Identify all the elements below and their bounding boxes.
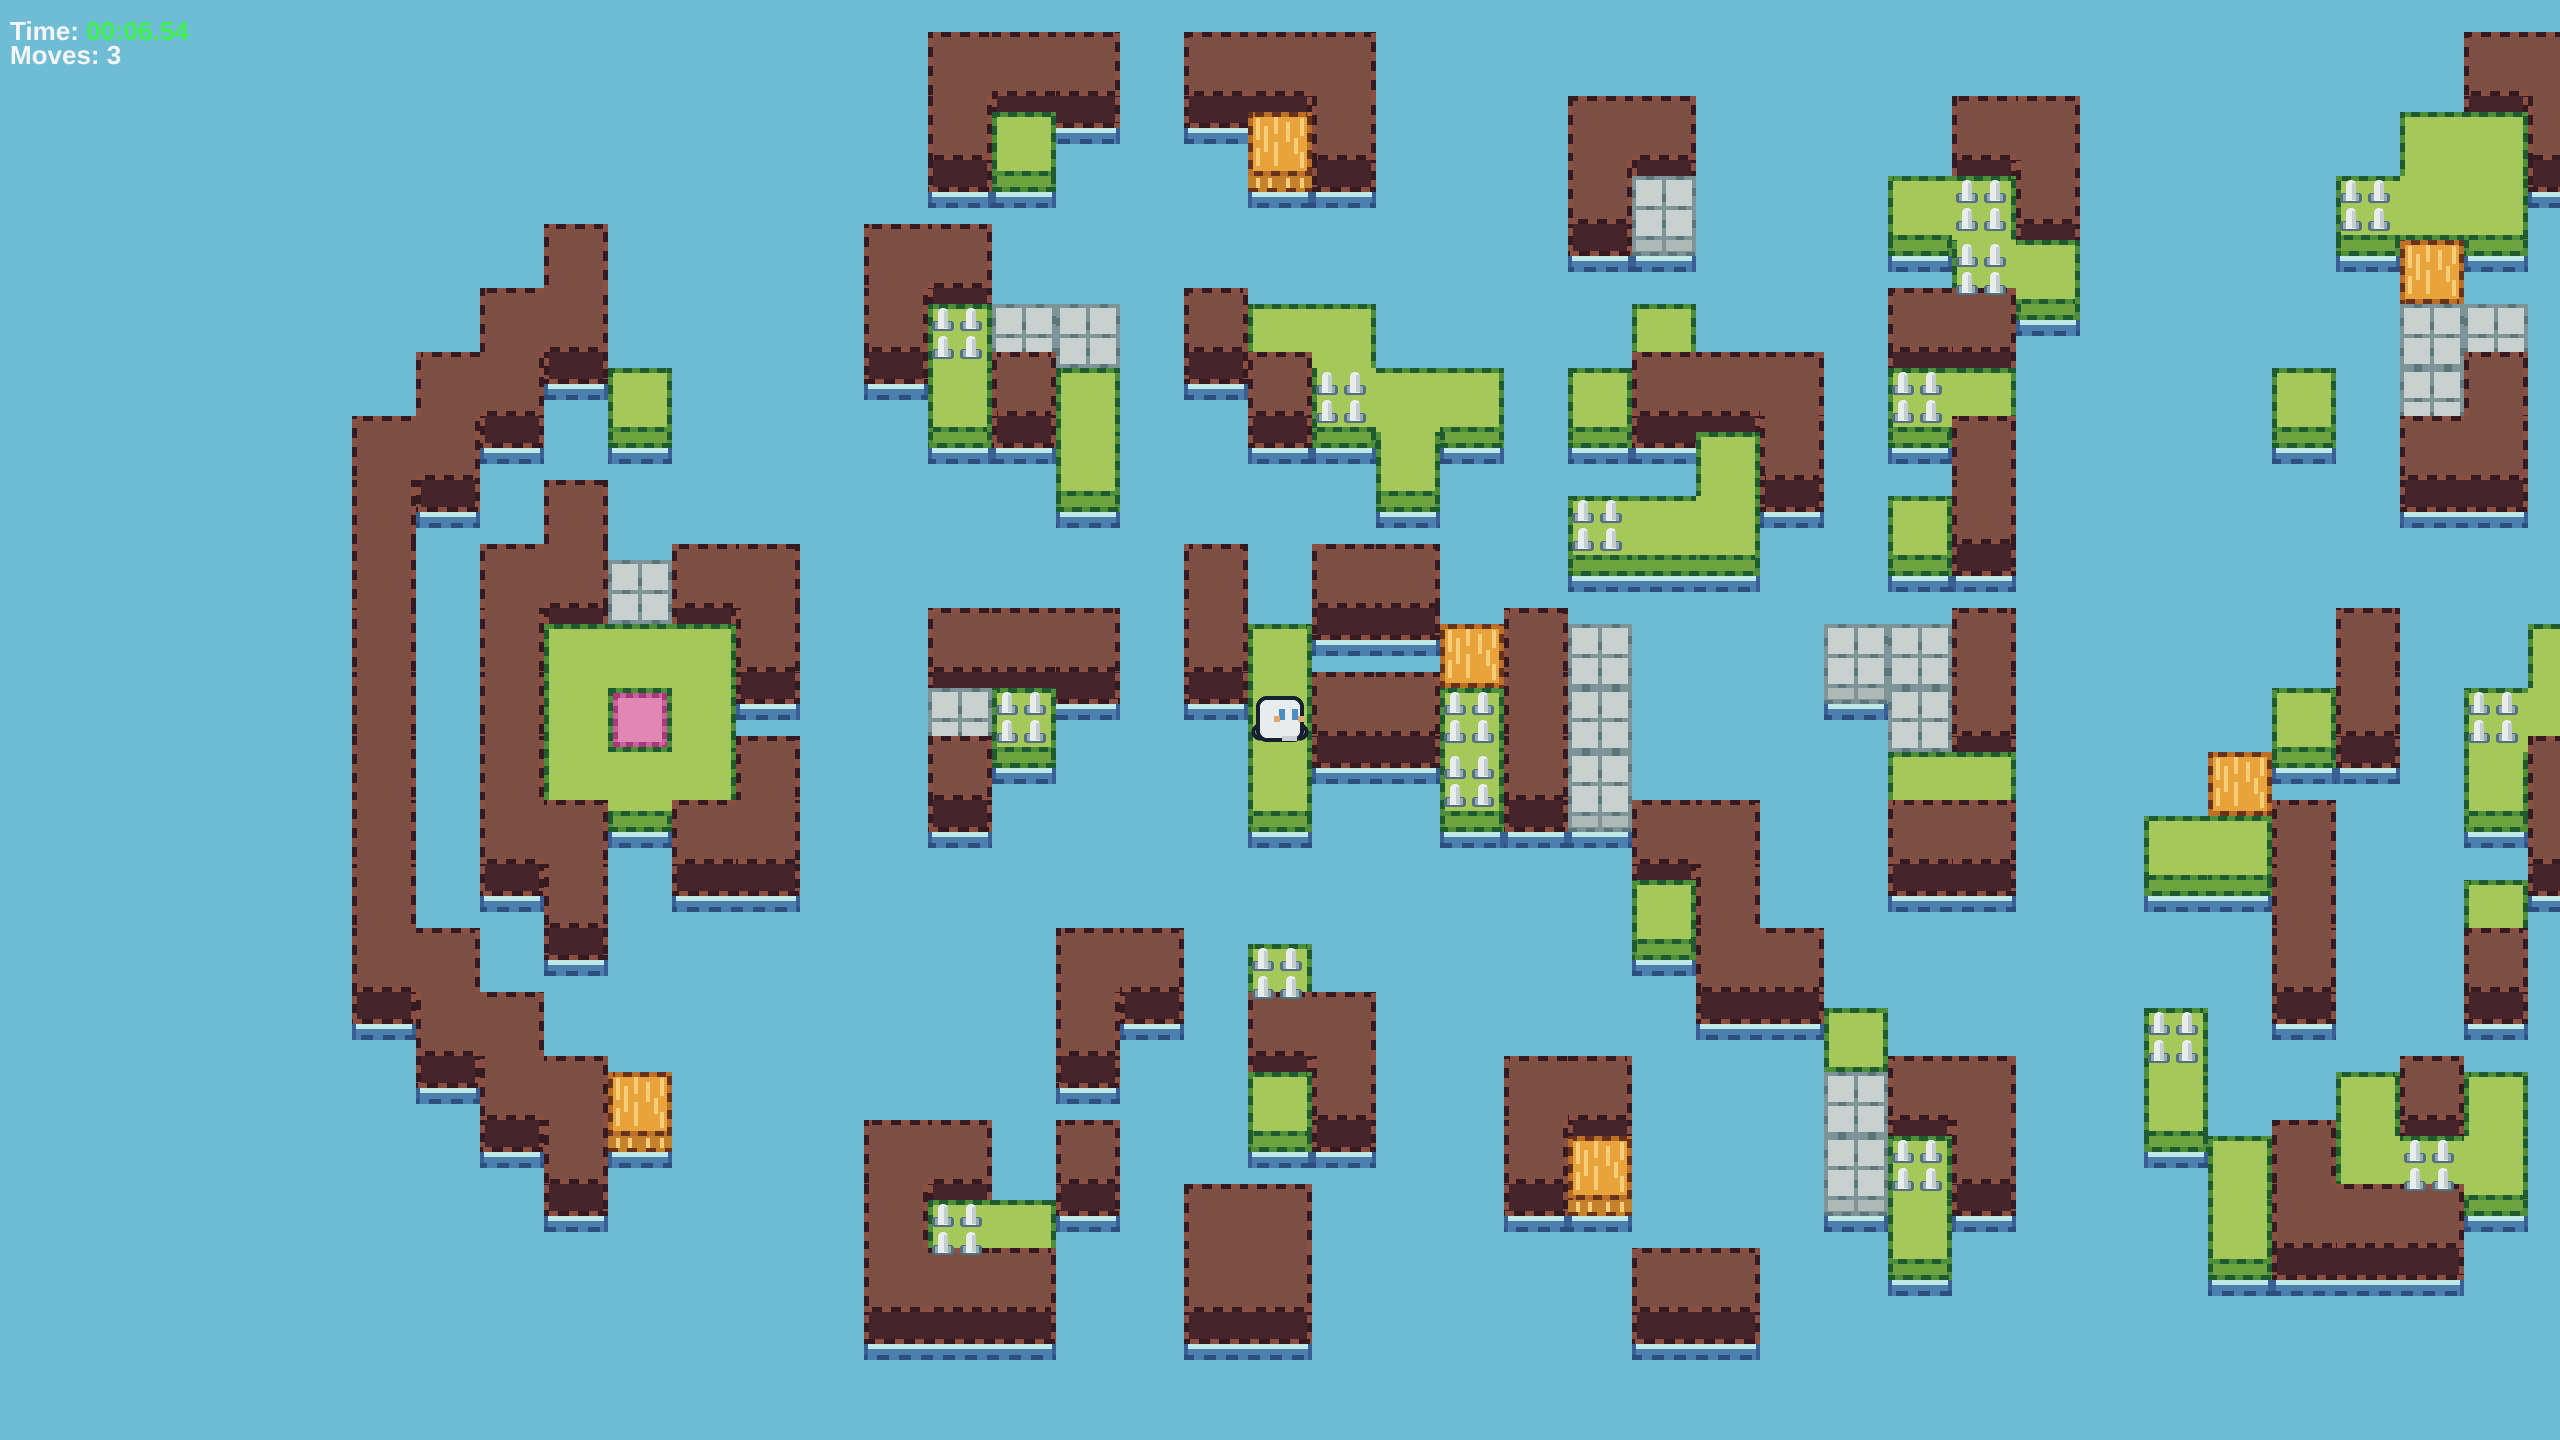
svg-text:Moves: 3: Moves: 3 xyxy=(10,40,121,70)
